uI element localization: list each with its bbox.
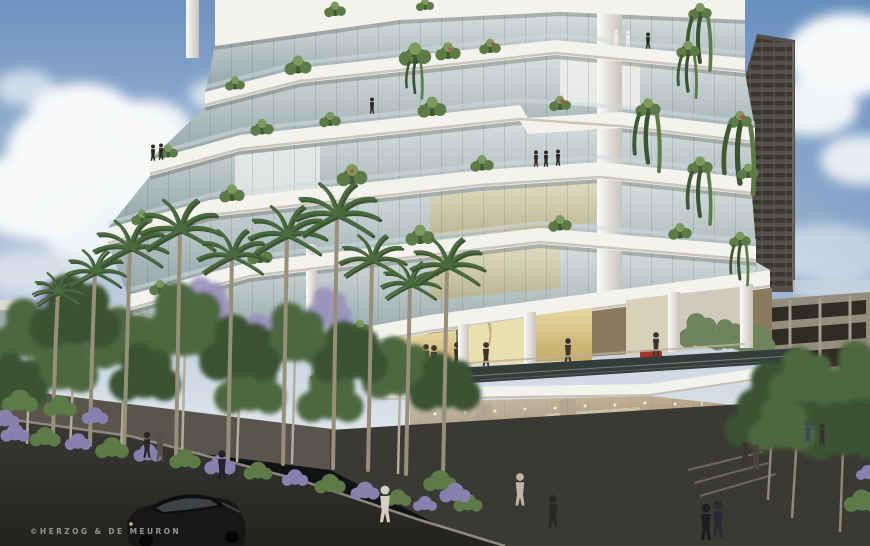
- car-wheel: [225, 531, 239, 543]
- architectural-rendering: ©HERZOG & DE MEURON: [0, 0, 870, 546]
- lobby-gold-panel: [532, 308, 592, 362]
- car-headlight: [129, 522, 133, 526]
- lobby-gold-panel-bright: [466, 318, 524, 366]
- sky-behind-garage: [793, 280, 870, 294]
- watermark-text: ©HERZOG & DE MEURON: [30, 527, 181, 536]
- rendering-canvas: ©HERZOG & DE MEURON: [0, 0, 870, 546]
- column-top-left: [186, 0, 199, 58]
- lobby-pale-panel: [626, 295, 668, 356]
